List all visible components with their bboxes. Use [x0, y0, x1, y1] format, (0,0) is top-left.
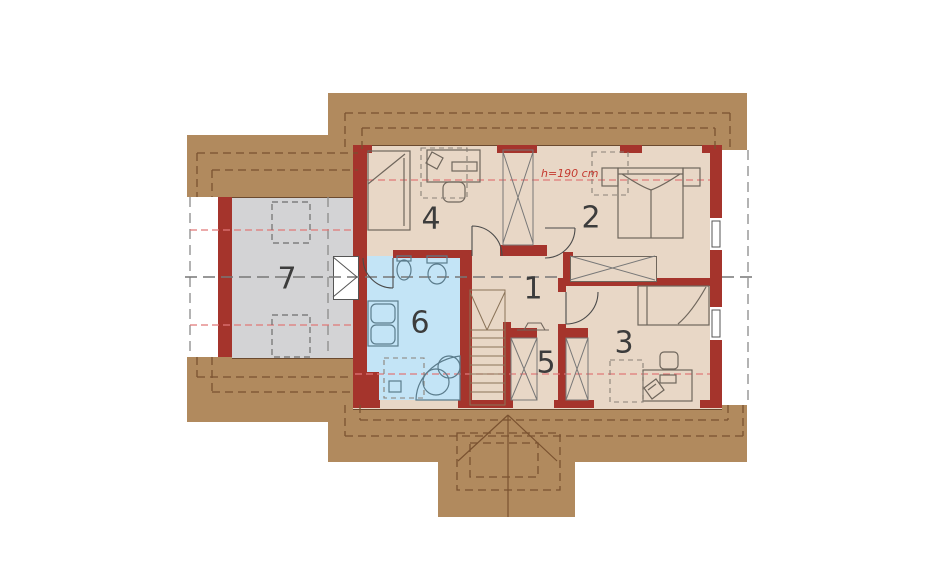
roof-band-main-top	[328, 93, 747, 150]
roof-band-main-bottom	[328, 405, 747, 462]
window-room3	[710, 307, 722, 340]
wall-bath-washer-stub	[367, 372, 379, 400]
floor-plan: 1 2 3 4 5 6 7 h=190 cm	[0, 0, 940, 587]
wall-room3-left-a	[558, 286, 566, 292]
room-label-2: 2	[581, 201, 600, 236]
wall-pier	[702, 145, 722, 153]
wall-shaft-cap-right	[558, 328, 588, 338]
room-label-3: 3	[614, 326, 633, 361]
height-annotation: h=190 cm	[541, 167, 598, 180]
room-label-1: 1	[523, 272, 542, 307]
wall-pier	[497, 145, 537, 153]
window-room2	[710, 218, 722, 250]
wall-bath-right-stair	[460, 256, 472, 408]
left-eave-gap	[190, 197, 218, 357]
room-label-6: 6	[410, 306, 429, 341]
wall-chimney-cap	[500, 245, 537, 256]
wall-pier	[620, 145, 642, 153]
right-eave-gap	[722, 150, 750, 405]
wall-pier	[700, 400, 722, 408]
wall-pier	[353, 145, 372, 153]
wall-gable-left-wing	[218, 197, 232, 357]
room-label-7: 7	[277, 262, 296, 297]
roof-band-wing-bottom	[187, 357, 353, 422]
wall-pier	[353, 400, 380, 408]
roof-band-wing-top	[187, 135, 362, 197]
room-label-5: 5	[536, 346, 555, 381]
wall-main-right	[710, 145, 722, 408]
room-label-4: 4	[421, 202, 440, 237]
entrance-dormer-roof	[438, 460, 575, 517]
wall-shaft-cap-left	[503, 328, 537, 338]
wall-room2-door-pier	[533, 245, 547, 256]
wardrobe-room2	[570, 256, 657, 282]
attic-hatch	[333, 256, 359, 300]
